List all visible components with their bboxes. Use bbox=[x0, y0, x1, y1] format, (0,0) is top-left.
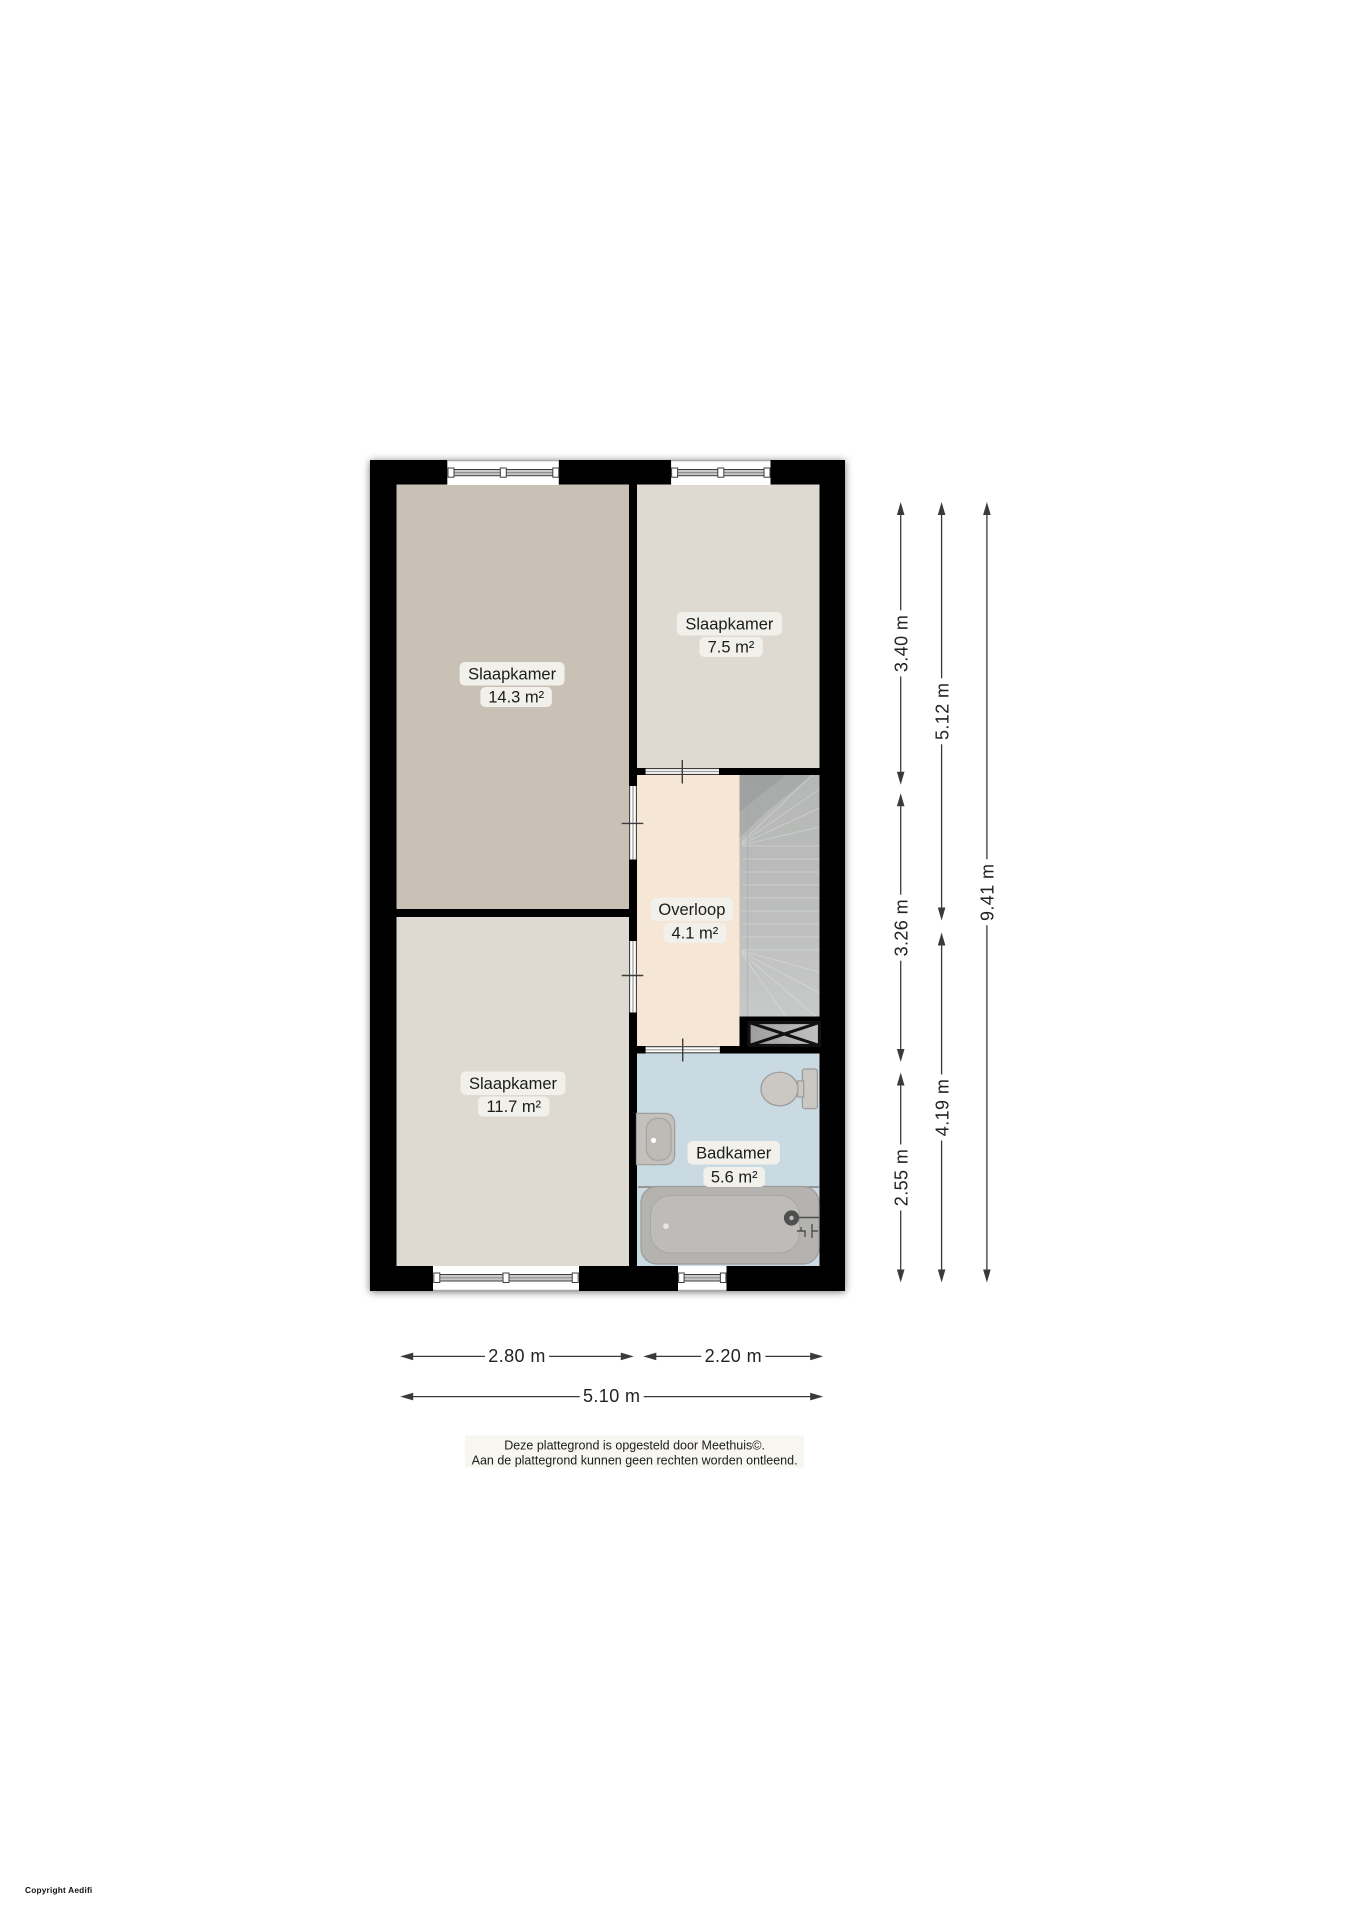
svg-text:3.26 m: 3.26 m bbox=[892, 899, 912, 956]
svg-text:14.3 m²: 14.3 m² bbox=[488, 689, 544, 707]
svg-text:Slaapkamer: Slaapkamer bbox=[685, 616, 774, 634]
svg-text:3.40 m: 3.40 m bbox=[892, 615, 912, 672]
svg-text:5.10 m: 5.10 m bbox=[583, 1386, 640, 1406]
svg-text:7.5 m²: 7.5 m² bbox=[708, 639, 755, 657]
svg-text:Aan de plattegrond kunnen geen: Aan de plattegrond kunnen geen rechten w… bbox=[472, 1454, 798, 1468]
svg-text:2.20 m: 2.20 m bbox=[705, 1346, 762, 1366]
svg-text:2.55 m: 2.55 m bbox=[892, 1149, 912, 1206]
svg-text:4.1 m²: 4.1 m² bbox=[672, 925, 719, 943]
svg-text:Deze plattegrond is opgesteld: Deze plattegrond is opgesteld door Meeth… bbox=[504, 1439, 765, 1453]
svg-text:Slaapkamer: Slaapkamer bbox=[469, 1075, 558, 1093]
svg-text:Slaapkamer: Slaapkamer bbox=[468, 666, 557, 684]
svg-text:11.7 m²: 11.7 m² bbox=[486, 1098, 541, 1116]
svg-text:4.19 m: 4.19 m bbox=[932, 1079, 952, 1136]
svg-text:Badkamer: Badkamer bbox=[696, 1145, 772, 1163]
svg-text:5.12 m: 5.12 m bbox=[932, 683, 952, 740]
svg-text:Copyright Aedifi: Copyright Aedifi bbox=[25, 1885, 92, 1895]
svg-text:5.6 m²: 5.6 m² bbox=[711, 1169, 758, 1187]
svg-text:2.80 m: 2.80 m bbox=[488, 1346, 545, 1366]
svg-text:Overloop: Overloop bbox=[658, 901, 725, 919]
svg-text:9.41 m: 9.41 m bbox=[978, 864, 998, 921]
